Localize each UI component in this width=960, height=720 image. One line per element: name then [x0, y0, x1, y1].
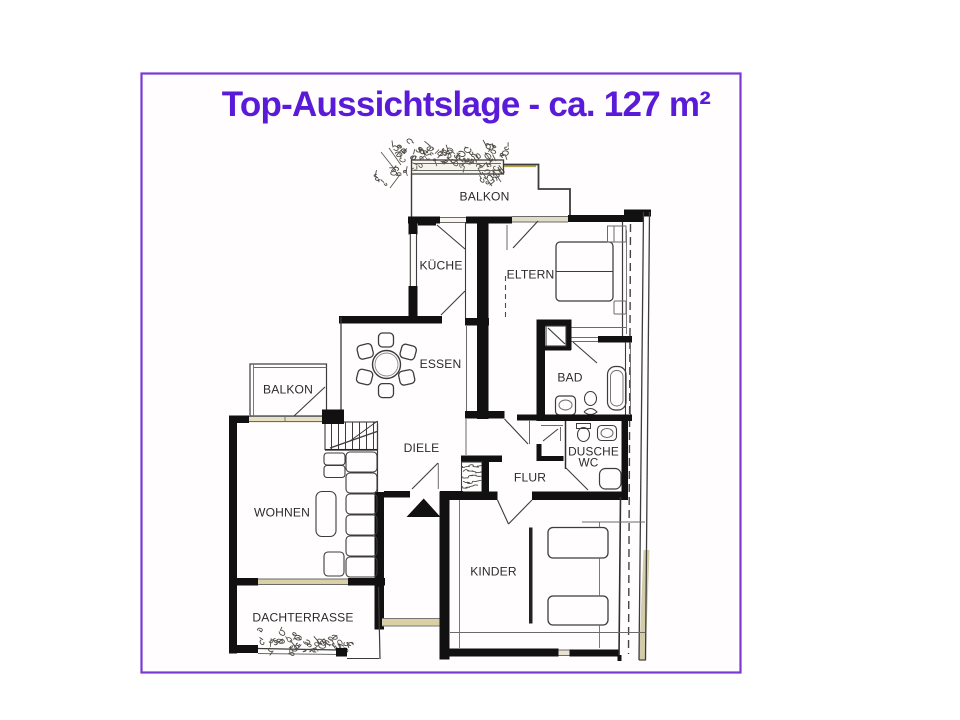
svg-text:BALKON: BALKON — [460, 190, 510, 204]
svg-text:FLUR: FLUR — [514, 471, 546, 485]
svg-text:WOHNEN: WOHNEN — [254, 506, 310, 520]
svg-text:BALKON: BALKON — [263, 383, 313, 397]
svg-text:BAD: BAD — [557, 371, 582, 385]
svg-text:Top-Aussichtslage - ca. 127 m²: Top-Aussichtslage - ca. 127 m² — [222, 85, 710, 124]
svg-text:DACHTERRASSE: DACHTERRASSE — [252, 611, 353, 625]
svg-text:WC: WC — [579, 456, 599, 470]
svg-text:DIELE: DIELE — [404, 441, 440, 455]
svg-text:KÜCHE: KÜCHE — [419, 259, 462, 273]
svg-text:ELTERN: ELTERN — [507, 268, 555, 282]
svg-text:ESSEN: ESSEN — [420, 357, 462, 371]
svg-text:KINDER: KINDER — [470, 565, 517, 579]
